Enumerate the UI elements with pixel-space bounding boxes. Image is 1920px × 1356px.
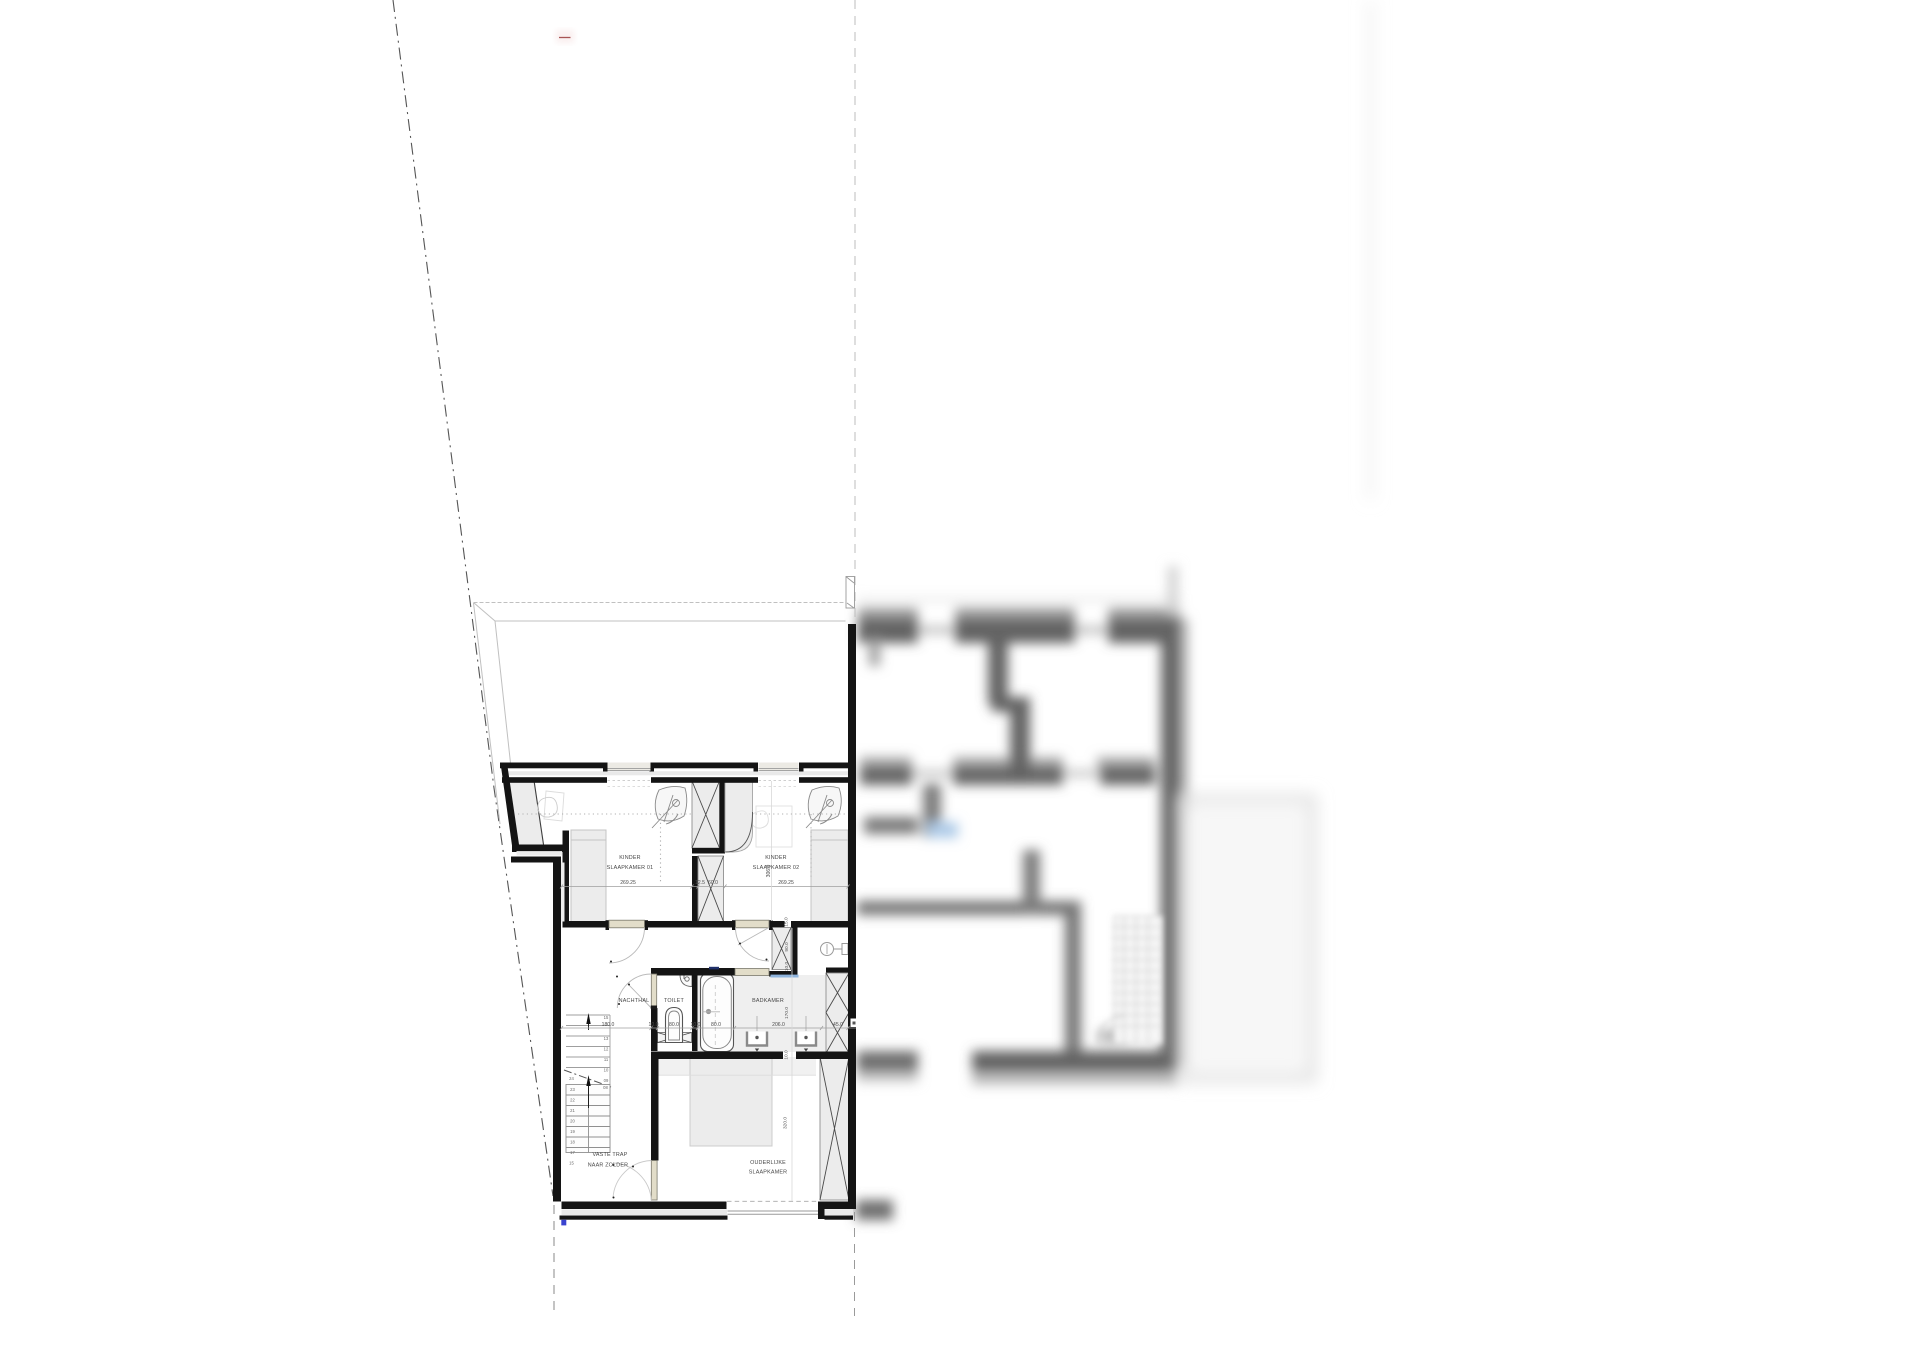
- svg-text:TOILET: TOILET: [664, 998, 684, 1004]
- svg-text:17: 17: [570, 1150, 575, 1155]
- svg-text:10.0: 10.0: [691, 1022, 701, 1028]
- svg-text:12: 12: [604, 1047, 609, 1052]
- svg-text:206.0: 206.0: [772, 1022, 785, 1028]
- svg-text:320.0: 320.0: [783, 1117, 789, 1129]
- svg-text:80.0: 80.0: [711, 1022, 721, 1028]
- svg-text:19: 19: [570, 1129, 575, 1134]
- svg-text:10.0: 10.0: [784, 962, 790, 972]
- svg-text:VASTE TRAP: VASTE TRAP: [592, 1152, 627, 1158]
- svg-text:60.0: 60.0: [708, 880, 718, 886]
- svg-text:SLAAPKAMER 01: SLAAPKAMER 01: [607, 865, 654, 871]
- svg-text:15: 15: [569, 1161, 574, 1166]
- svg-text:21: 21: [570, 1108, 575, 1113]
- svg-text:SLAAPKAMER: SLAAPKAMER: [749, 1170, 788, 1176]
- svg-text:10.0: 10.0: [784, 1050, 790, 1060]
- svg-text:23: 23: [570, 1087, 575, 1092]
- svg-text:15.0: 15.0: [784, 917, 790, 927]
- svg-text:269.25: 269.25: [620, 880, 636, 886]
- svg-text:NAAR ZOLDER: NAAR ZOLDER: [588, 1163, 629, 1169]
- svg-text:90.0: 90.0: [784, 942, 790, 952]
- svg-text:10: 10: [604, 1068, 609, 1073]
- svg-text:09: 09: [604, 1078, 609, 1083]
- svg-text:15: 15: [604, 1015, 609, 1020]
- svg-text:08: 08: [603, 1085, 608, 1090]
- svg-text:10.0: 10.0: [649, 1022, 659, 1028]
- svg-text:269.25: 269.25: [778, 880, 794, 886]
- svg-text:18: 18: [570, 1140, 575, 1145]
- svg-text:22: 22: [570, 1098, 575, 1103]
- svg-text:11: 11: [604, 1057, 609, 1062]
- svg-text:45.0: 45.0: [833, 1022, 843, 1028]
- svg-text:24: 24: [569, 1076, 574, 1081]
- svg-text:OUDERLIJKE: OUDERLIJKE: [750, 1160, 786, 1166]
- svg-text:KINDER: KINDER: [619, 855, 641, 861]
- svg-text:KINDER: KINDER: [765, 855, 787, 861]
- svg-text:13: 13: [604, 1036, 609, 1041]
- svg-text:180.0: 180.0: [602, 1022, 615, 1028]
- svg-text:12.5: 12.5: [695, 880, 705, 886]
- svg-text:170.0: 170.0: [784, 1007, 790, 1019]
- svg-text:BADKAMER: BADKAMER: [752, 998, 784, 1004]
- svg-text:NACHTHAL: NACHTHAL: [619, 998, 650, 1004]
- svg-text:20: 20: [570, 1119, 575, 1124]
- svg-text:SLAAPKAMER 02: SLAAPKAMER 02: [753, 865, 800, 871]
- svg-text:80.0: 80.0: [669, 1022, 679, 1028]
